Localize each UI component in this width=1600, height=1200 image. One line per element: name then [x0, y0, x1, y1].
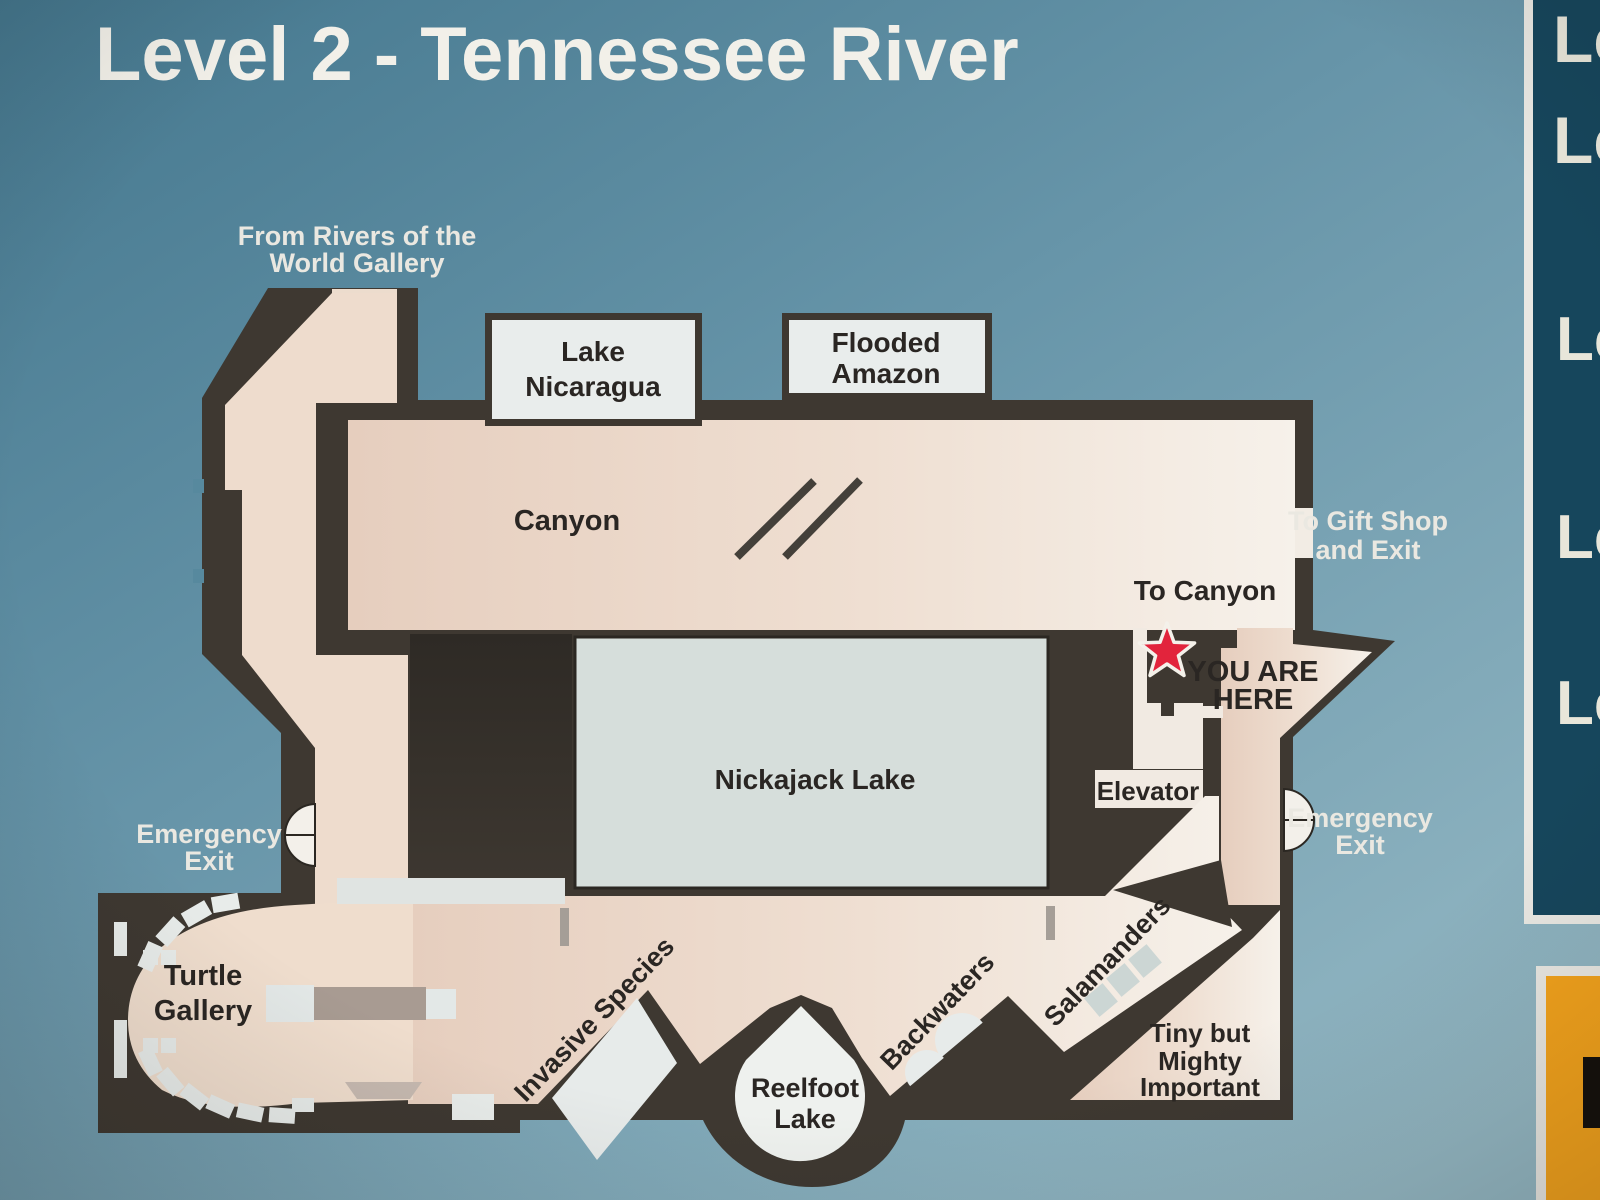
floor-map-photo: Level 2 - Tennessee River From Rivers of… — [0, 0, 1600, 1200]
vignette-overlay — [0, 0, 1600, 1200]
